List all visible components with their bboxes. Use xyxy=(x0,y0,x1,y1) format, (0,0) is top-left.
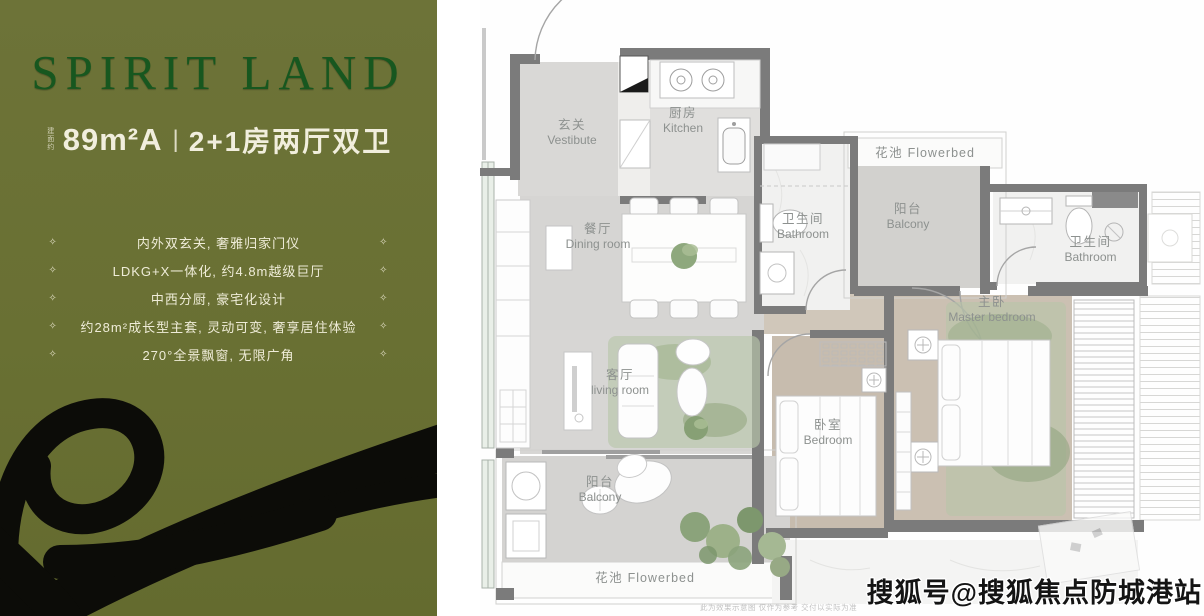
sideboard xyxy=(546,226,572,270)
selling-point-row: ✧ 内外双玄关, 奢雅归家门仪 ✧ xyxy=(49,228,389,256)
dresser xyxy=(820,342,886,366)
unit-subtitle: 建面约 89m²A | 2+1房两厅双卫 xyxy=(0,120,437,160)
disclaimer-text: 此为效果示意图 仅作为参考 交付以实际为准 xyxy=(700,602,857,613)
toilet xyxy=(1066,208,1092,244)
storage-cabinets xyxy=(496,200,530,448)
subtitle-divider: | xyxy=(171,126,181,154)
washbasin xyxy=(760,252,794,294)
tv xyxy=(572,366,577,412)
watermark: 搜狐号@搜狐焦点防城港站 xyxy=(867,571,1202,610)
toilet xyxy=(773,210,807,236)
diamond-icon: ✧ xyxy=(49,237,58,248)
area-value: 89m²A xyxy=(63,122,163,158)
diamond-icon: ✧ xyxy=(379,265,388,276)
diamond-icon: ✧ xyxy=(379,237,388,248)
sofa xyxy=(618,344,658,438)
tv-console xyxy=(564,352,592,430)
coffee-table xyxy=(676,339,710,365)
side-table xyxy=(677,368,707,416)
master-bed xyxy=(938,340,1050,466)
selling-point-text: 内外双玄关, 奢雅归家门仪 xyxy=(58,233,379,252)
selling-point-text: LDKG+X一体化, 约4.8m越级巨厅 xyxy=(58,261,379,280)
area-prefix-label: 建面约 xyxy=(45,127,55,153)
unit-type-label: 2+1房两厅双卫 xyxy=(189,120,393,160)
stove xyxy=(660,62,734,98)
poster-panel: SPIRIT LAND 建面约 89m²A | 2+1房两厅双卫 ✧ 内外双玄关… xyxy=(0,0,437,616)
selling-point-row: ✧ LDKG+X一体化, 约4.8m越级巨厅 ✧ xyxy=(49,256,389,284)
diamond-icon: ✧ xyxy=(49,265,58,276)
tree-branch-silhouette xyxy=(0,286,437,616)
brand-title: SPIRIT LAND xyxy=(0,44,437,101)
bed xyxy=(776,396,876,516)
